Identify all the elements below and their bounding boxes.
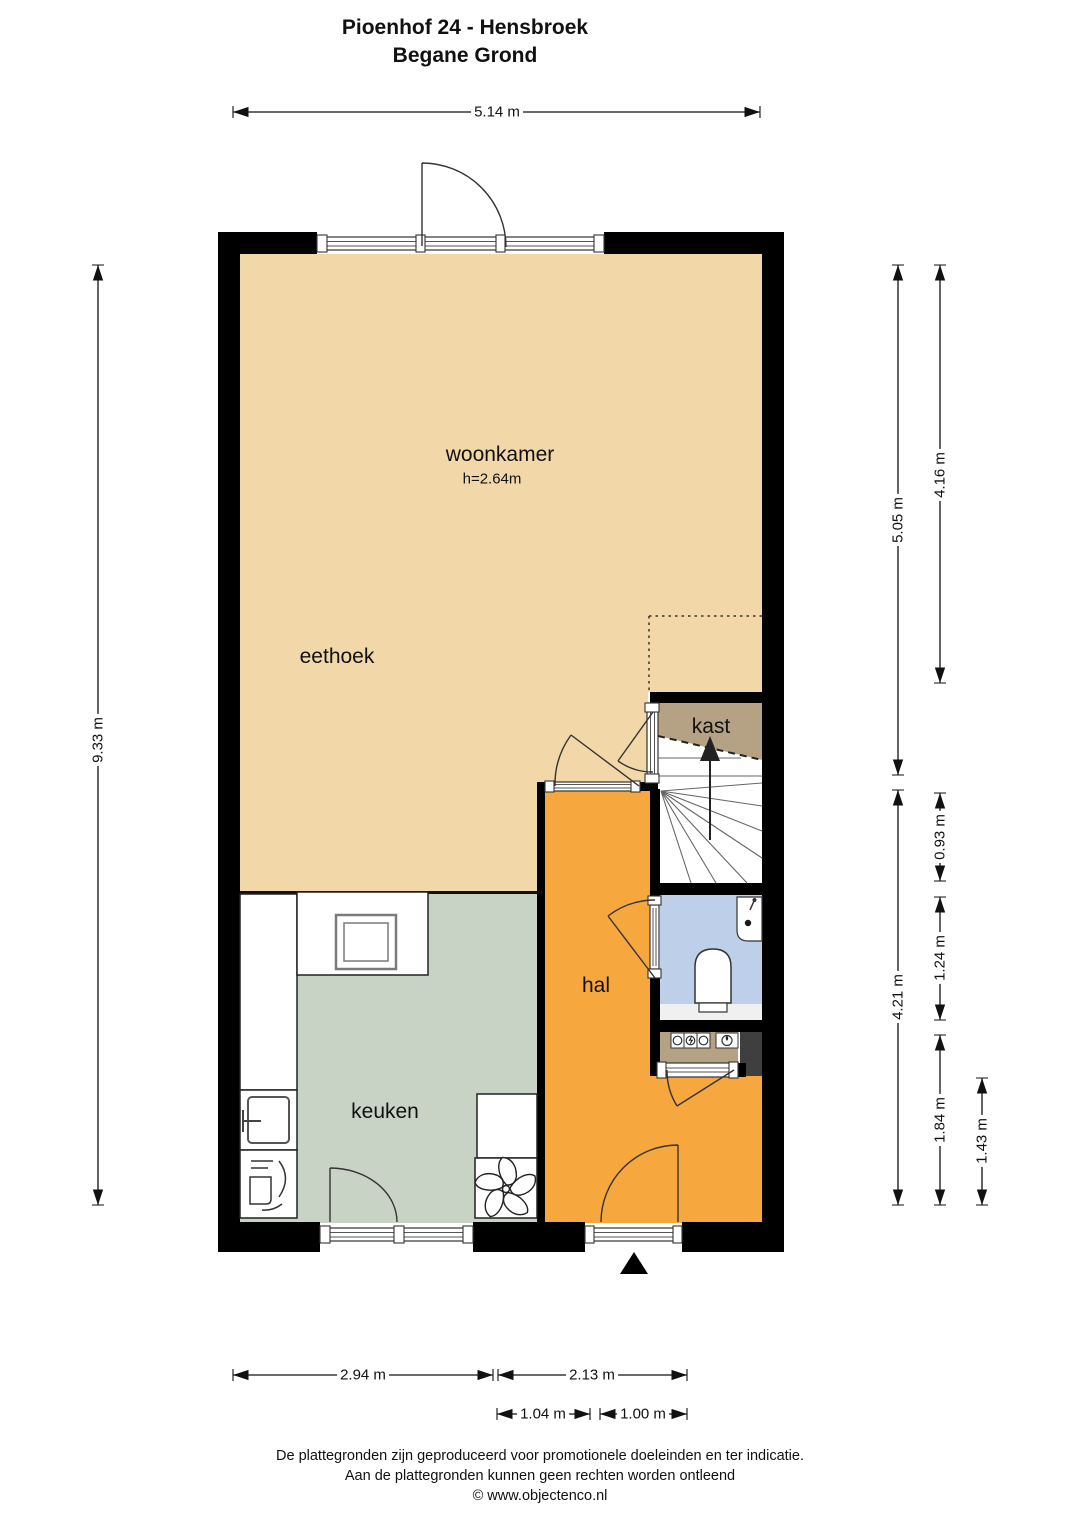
floorplan-drawing bbox=[0, 0, 1080, 1527]
dim-right-lower: 4.21 m bbox=[890, 971, 907, 1023]
corner-sink-icon bbox=[737, 897, 762, 941]
wall-right bbox=[762, 232, 784, 1252]
dim-right-upper-inner: 5.05 m bbox=[890, 494, 907, 546]
kitchen-counter-left bbox=[240, 894, 297, 1090]
dim-bottom-kitchen: 2.94 m bbox=[337, 1367, 389, 1384]
wall-hall-toilet-upper bbox=[650, 789, 660, 898]
footer-line-1: De plattegronden zijn geproduceerd voor … bbox=[0, 1446, 1080, 1466]
dim-right-hal: 1.84 m bbox=[932, 1094, 949, 1146]
dim-right-upper-outer: 4.16 m bbox=[932, 449, 949, 501]
room-label-woonkamer-height: h=2.64m bbox=[463, 471, 522, 488]
floorplan-page: Pioenhof 24 - Hensbroek Begane Grond bbox=[0, 0, 1080, 1527]
glass-partition-hall bbox=[545, 781, 640, 792]
wall-bottom-right bbox=[682, 1222, 784, 1252]
wall-top-right bbox=[604, 232, 784, 254]
window-top bbox=[317, 235, 604, 252]
dim-top-width: 5.14 m bbox=[471, 104, 523, 121]
window-kitchen bbox=[320, 1226, 473, 1243]
glass-partition-stairs bbox=[645, 703, 659, 783]
room-label-keuken: keuken bbox=[351, 1100, 419, 1124]
wall-toilet-top bbox=[650, 883, 762, 895]
wall-meter-post bbox=[738, 1063, 746, 1077]
room-label-woonkamer: woonkamer bbox=[446, 443, 555, 467]
wall-bottom-left bbox=[218, 1222, 320, 1252]
toilet-door-frame bbox=[648, 896, 661, 978]
dim-bottom-front-door: 1.00 m bbox=[617, 1406, 669, 1423]
terrace-door-arc bbox=[422, 163, 506, 247]
dining-area-floor bbox=[240, 692, 648, 783]
room-label-eethoek: eethoek bbox=[300, 645, 375, 669]
dim-right-toilet: 1.24 m bbox=[932, 932, 949, 984]
toilet-icon bbox=[695, 949, 731, 1012]
wall-left bbox=[218, 232, 240, 1252]
wall-closet-top bbox=[650, 692, 762, 703]
kitchen-appliance-cabinet bbox=[240, 1150, 297, 1218]
dim-right-closet: 0.93 m bbox=[932, 811, 949, 863]
footer-line-2: Aan de plattegronden kunnen geen rechten… bbox=[0, 1466, 1080, 1486]
wall-toilet-bottom bbox=[650, 1020, 762, 1032]
dim-bottom-kitchen-door: 1.04 m bbox=[517, 1406, 569, 1423]
dim-left-height: 9.33 m bbox=[90, 714, 107, 766]
dim-bottom-hall: 2.13 m bbox=[566, 1367, 618, 1384]
kitchen-cabinet-right bbox=[477, 1094, 537, 1158]
entrance-marker-icon bbox=[620, 1252, 648, 1274]
hall-floor-lower bbox=[650, 1076, 762, 1223]
front-door-sill bbox=[585, 1226, 682, 1243]
utility-meters-icon bbox=[671, 1033, 738, 1048]
room-label-hal: hal bbox=[582, 974, 610, 998]
footer-copyright: © www.objectenco.nl bbox=[0, 1486, 1080, 1506]
dim-right-entry: 1.43 m bbox=[974, 1115, 991, 1167]
room-label-kast: kast bbox=[692, 715, 731, 739]
room-floors bbox=[240, 254, 762, 1223]
wall-bottom-middle bbox=[473, 1222, 585, 1252]
dining-area-floor-lower bbox=[240, 782, 537, 894]
wall-kitchen-hall bbox=[537, 789, 545, 1223]
footer-disclaimer: De plattegronden zijn geproduceerd voor … bbox=[0, 1446, 1080, 1506]
kitchen-counter-top bbox=[297, 892, 428, 975]
